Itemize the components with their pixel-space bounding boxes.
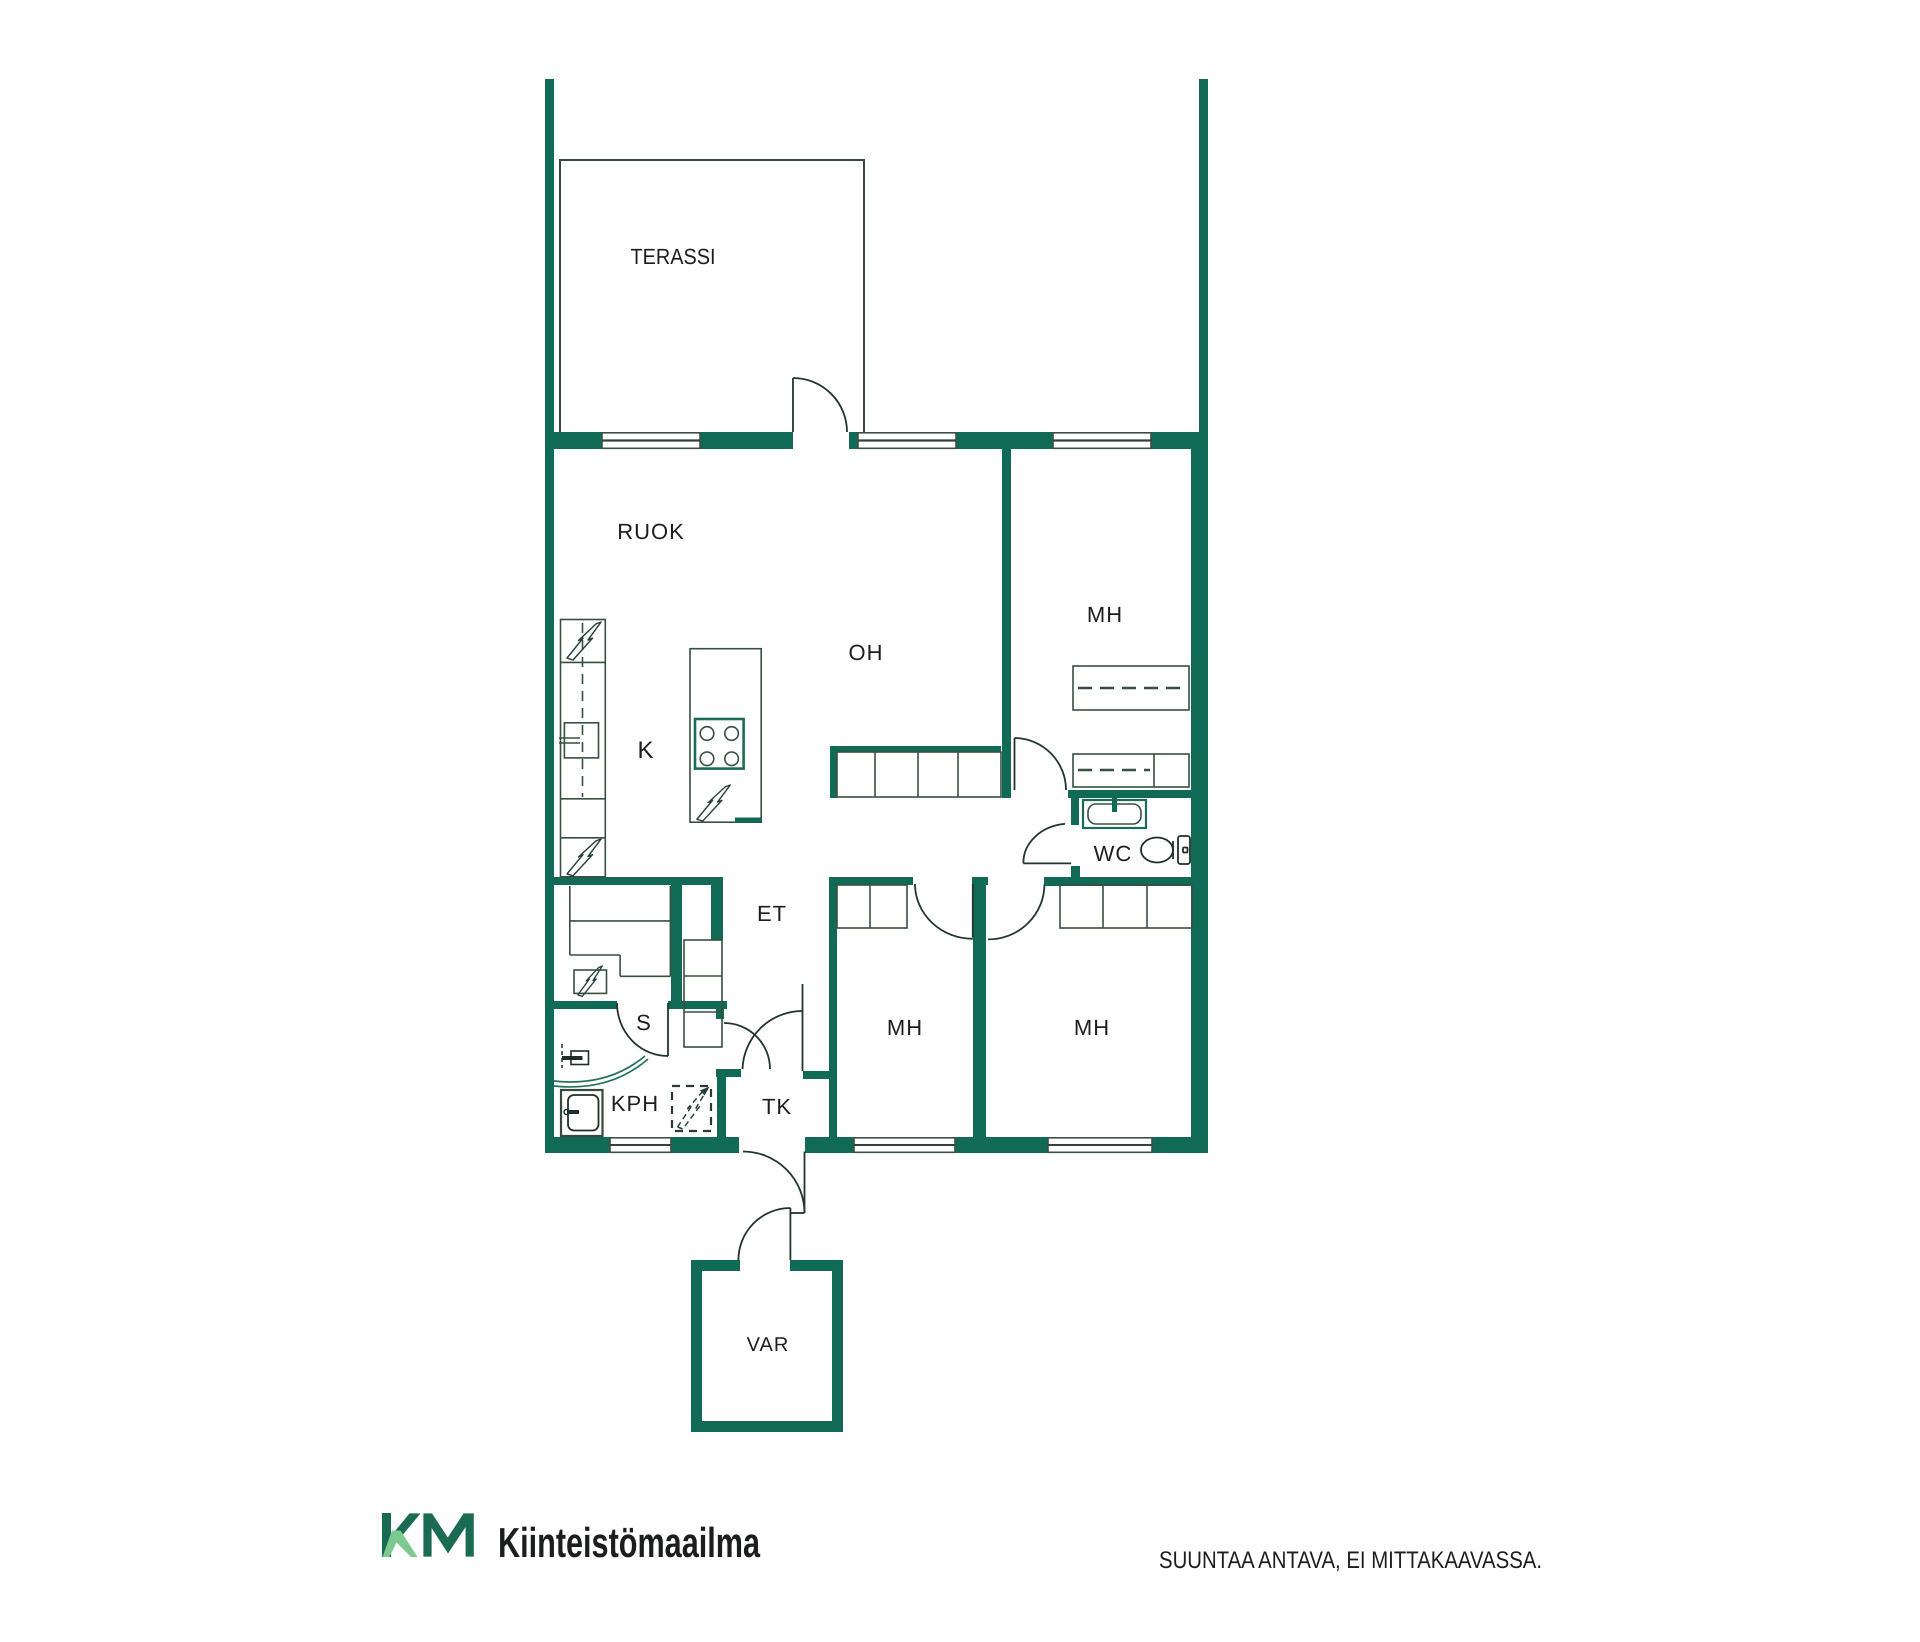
svg-text:MH: MH — [1087, 602, 1123, 627]
svg-text:TERASSI: TERASSI — [631, 244, 716, 269]
svg-text:TK: TK — [762, 1094, 792, 1119]
svg-text:S: S — [636, 1010, 652, 1035]
svg-text:Kiinteistömaailma: Kiinteistömaailma — [498, 1519, 760, 1566]
svg-text:KPH: KPH — [611, 1091, 659, 1116]
svg-text:OH: OH — [849, 640, 884, 665]
svg-text:MH: MH — [887, 1015, 923, 1040]
svg-text:WC: WC — [1094, 841, 1133, 866]
svg-text:SUUNTAA ANTAVA, EI MITTAKAAVAS: SUUNTAA ANTAVA, EI MITTAKAAVASSA. — [1159, 1547, 1542, 1574]
svg-text:K: K — [637, 737, 654, 764]
svg-text:VAR: VAR — [747, 1334, 790, 1356]
svg-text:ET: ET — [757, 901, 787, 926]
svg-text:RUOK: RUOK — [617, 519, 685, 544]
svg-text:MH: MH — [1074, 1015, 1110, 1040]
